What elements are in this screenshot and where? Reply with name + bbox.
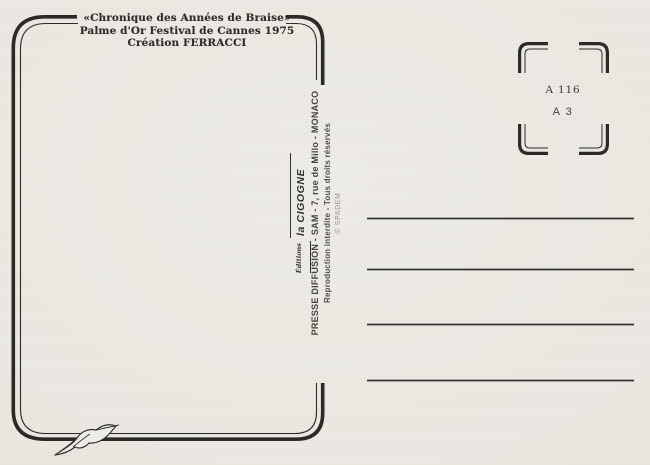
publisher-rights: Reproduction interdite - Tous droits rés… xyxy=(322,63,333,363)
stamp-corner-marks xyxy=(520,44,608,154)
postcard-back: «Chronique des Années de Braise» Palme d… xyxy=(0,0,650,465)
stamp-code-bottom: A 3 xyxy=(523,106,603,118)
editions-la-cigogne-logo: Éditionsla CIGOGNE xyxy=(290,63,309,363)
publisher-address: PRESSE DIFFUSION - SAM - 7, rue de Millo… xyxy=(309,63,322,363)
picture-frame-border xyxy=(13,17,322,439)
publisher-block: Éditionsla CIGOGNE PRESSE DIFFUSION - SA… xyxy=(290,63,350,363)
title-line: Palme d'Or Festival de Cannes 1975 xyxy=(64,25,310,38)
stamp-code-top: A 116 xyxy=(523,84,603,96)
title-block: «Chronique des Années de Braise» Palme d… xyxy=(64,12,310,50)
address-lines xyxy=(367,219,634,381)
publisher-copyright: © SPADEM xyxy=(333,63,344,363)
logo-cigogne-text: la CIGOGNE xyxy=(290,153,311,238)
logo-editions-text: Éditions xyxy=(290,241,311,273)
title-line: «Chronique des Années de Braise» xyxy=(64,12,310,25)
title-line: Création FERRACCI xyxy=(64,37,310,50)
